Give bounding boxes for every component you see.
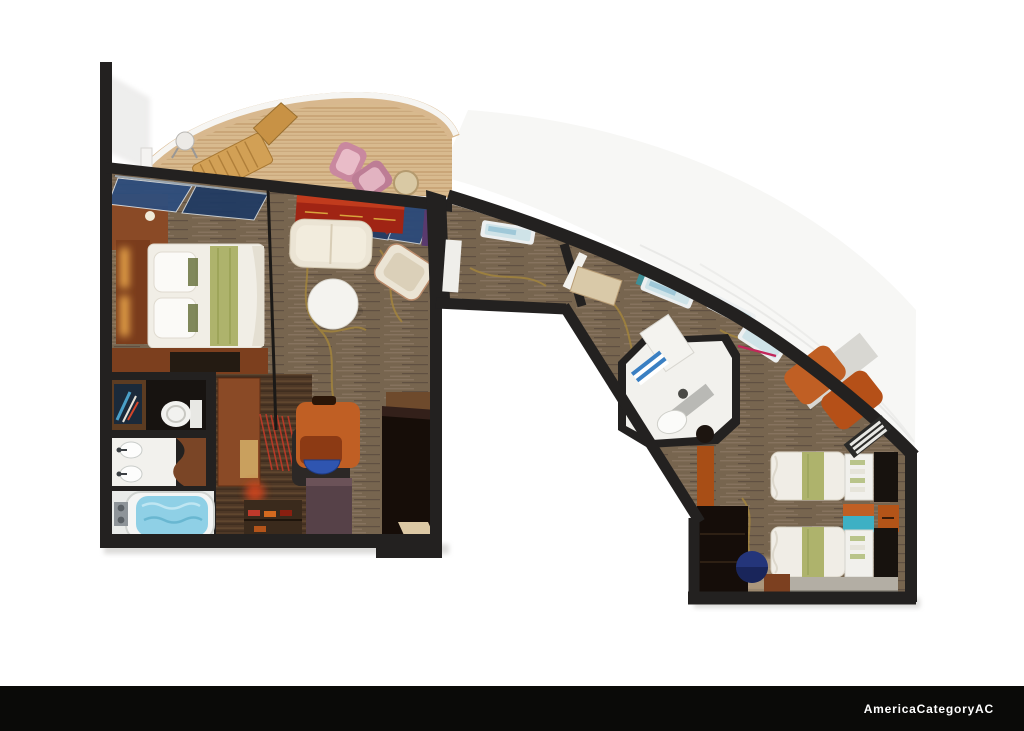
tv-panel: [874, 528, 898, 578]
wardrobe-dark: [382, 414, 436, 540]
lit-shelf: [240, 440, 258, 478]
guest-closet: [697, 506, 748, 594]
twin-bed-1: [771, 452, 898, 502]
bag-handle: [312, 396, 336, 405]
orange-cabinet: [697, 446, 714, 506]
watermark-bar: AmericaCategoryAC: [0, 686, 1024, 731]
wall-art-colorful: [114, 384, 142, 424]
bed-runner: [210, 246, 238, 346]
floor-lamp-top: [696, 425, 714, 443]
wall-void-top: [436, 303, 566, 309]
wall-left: [100, 62, 112, 546]
loveseat: [289, 219, 373, 270]
blue-pouf: [736, 551, 768, 583]
dressing-area: [216, 374, 438, 544]
tv-panel: [874, 452, 898, 502]
left-block: [106, 168, 438, 546]
tv-flat: [170, 352, 240, 372]
watermark-label: AmericaCategoryAC: [864, 702, 1024, 716]
twin-bed-2: [771, 527, 898, 578]
console: [306, 478, 352, 540]
floorplan-rendering: [0, 0, 1024, 686]
red-lamp-glow: [245, 482, 265, 502]
wall-right-left-block: [430, 296, 442, 548]
desk-orange: [296, 396, 360, 468]
double-sink-vanity: [112, 438, 206, 486]
master-bed: [148, 244, 264, 348]
screenshot-canvas: AmericaCategoryAC: [0, 0, 1024, 731]
balcony-round-table: [394, 171, 418, 195]
bedside-lamp: [145, 211, 155, 221]
master-bathroom: [106, 372, 216, 546]
guest-nightstand: [843, 504, 899, 532]
toilet: [161, 400, 202, 428]
